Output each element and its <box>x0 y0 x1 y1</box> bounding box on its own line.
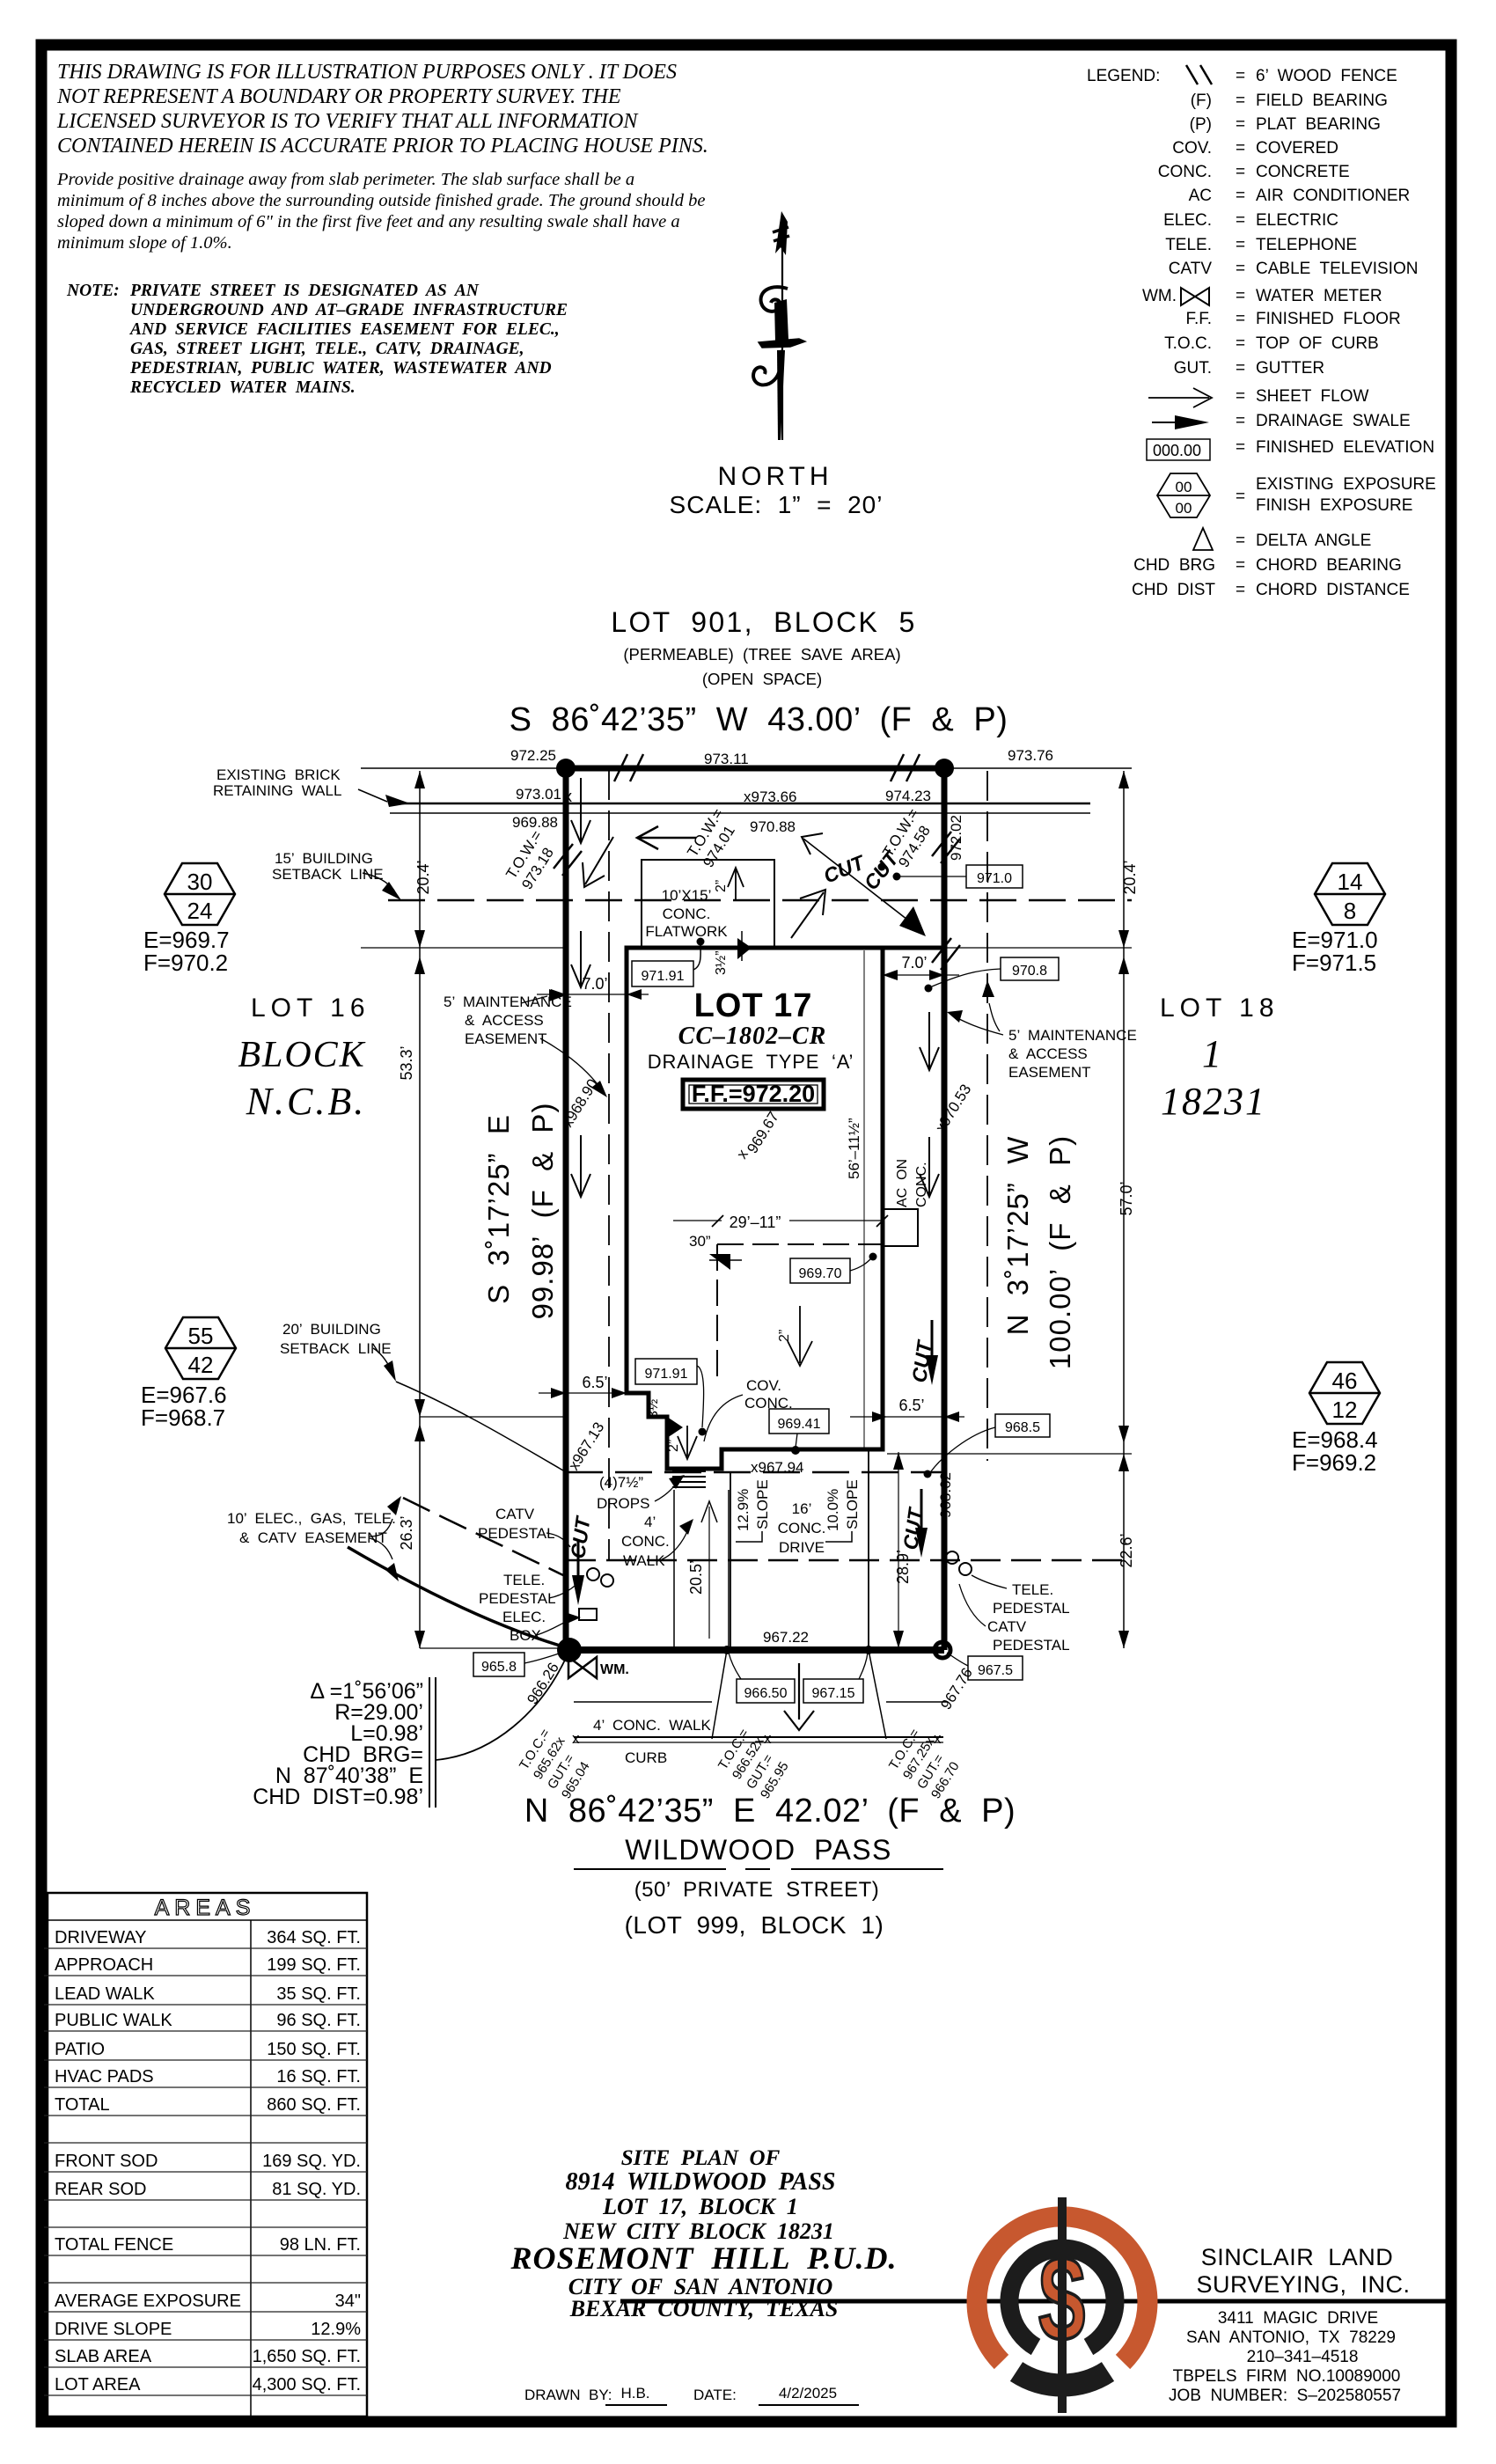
svg-text:PEDESTRIAN, PUBLIC WATER, W: PEDESTRIAN, PUBLIC WATER, WASTEWATER AND <box>129 359 552 378</box>
svg-text:WM.: WM. <box>600 1662 629 1677</box>
svg-text:HVAC PADS: HVAC PADS <box>55 2067 154 2086</box>
svg-text:4’: 4’ <box>644 1514 656 1530</box>
svg-text:ROSEMONT HILL P.U.D.: ROSEMONT HILL P.U.D. <box>510 2240 897 2276</box>
svg-text:10’X15’: 10’X15’ <box>662 887 712 904</box>
svg-text:SLOPE: SLOPE <box>844 1479 861 1529</box>
svg-text:26.3’: 26.3’ <box>398 1515 415 1550</box>
svg-text:PEDESTAL: PEDESTAL <box>479 1590 556 1607</box>
svg-text:=: = <box>1236 287 1245 305</box>
svg-text:8914 WILDWOOD PASS: 8914 WILDWOOD PASS <box>565 2168 835 2196</box>
svg-text:AREAS: AREAS <box>155 1896 256 1920</box>
svg-text:LOT 17, BLOCK 1: LOT 17, BLOCK 1 <box>602 2194 798 2219</box>
svg-text:969.41: 969.41 <box>778 1417 821 1432</box>
svg-text:LOT 18: LOT 18 <box>1160 994 1280 1023</box>
svg-text:& ACCESS: & ACCESS <box>465 1012 544 1029</box>
svg-text:=: = <box>1236 556 1245 575</box>
svg-text:COVERED: COVERED <box>1256 139 1338 158</box>
svg-text:364 SQ. FT.: 364 SQ. FT. <box>267 1928 361 1947</box>
svg-text:PATIO: PATIO <box>55 2040 105 2059</box>
svg-text:SINCLAIR LAND: SINCLAIR LAND <box>1201 2244 1394 2270</box>
svg-text:(P): (P) <box>1190 115 1212 134</box>
svg-text:971.0: 971.0 <box>977 871 1012 886</box>
svg-text:FIELD BEARING: FIELD BEARING <box>1256 92 1388 110</box>
svg-text:=: = <box>1236 412 1245 430</box>
svg-text:150 SQ. FT.: 150 SQ. FT. <box>267 2040 361 2059</box>
svg-text:(PERMEABLE) (TREE SAVE AREA: (PERMEABLE) (TREE SAVE AREA) <box>623 645 900 664</box>
svg-text:COV.: COV. <box>746 1377 781 1394</box>
svg-text:DRIVEWAY: DRIVEWAY <box>55 1928 146 1947</box>
svg-text:GUTTER: GUTTER <box>1256 359 1324 378</box>
svg-text:LOT AREA: LOT AREA <box>55 2375 141 2394</box>
svg-text:100.00’ (F & P): 100.00’ (F & P) <box>1044 1135 1076 1369</box>
svg-text:12: 12 <box>1332 1397 1358 1423</box>
svg-text:6’ WOOD FENCE: 6’ WOOD FENCE <box>1256 67 1397 85</box>
svg-text:GAS, STREET LIGHT, TELE.,: GAS, STREET LIGHT, TELE., CATV, DRAINAGE… <box>130 340 524 358</box>
svg-text:LOT 16: LOT 16 <box>251 994 370 1023</box>
svg-text:CATV: CATV <box>1169 260 1213 278</box>
svg-text:WILDWOOD PASS: WILDWOOD PASS <box>625 1834 891 1866</box>
svg-text:F=971.5: F=971.5 <box>1292 950 1376 976</box>
svg-text:967.15: 967.15 <box>812 1686 855 1701</box>
svg-text:DRAINAGE TYPE ‘A’: DRAINAGE TYPE ‘A’ <box>648 1051 854 1073</box>
svg-text:4,300 SQ. FT.: 4,300 SQ. FT. <box>253 2375 361 2394</box>
svg-text:CC–1802–CR: CC–1802–CR <box>678 1023 827 1050</box>
svg-text:FRONT SOD: FRONT SOD <box>55 2152 158 2171</box>
svg-text:AND SERVICE FACILITIES EASE: AND SERVICE FACILITIES EASEMENT FOR ELEC… <box>128 320 560 339</box>
svg-text:99.98’ (F & P): 99.98’ (F & P) <box>526 1103 559 1320</box>
svg-text:CABLE TELEVISION: CABLE TELEVISION <box>1256 260 1418 278</box>
svg-text:CHD DIST: CHD DIST <box>1132 581 1215 599</box>
svg-text:6.5’: 6.5’ <box>582 1374 607 1391</box>
svg-text:2”: 2” <box>714 880 729 892</box>
svg-text:=: = <box>1236 359 1245 378</box>
svg-text:NORTH: NORTH <box>717 462 832 491</box>
svg-text:57.0’: 57.0’ <box>1118 1181 1135 1215</box>
svg-text:=: = <box>1236 532 1245 550</box>
svg-text:REAR SOD: REAR SOD <box>55 2180 146 2199</box>
svg-text:AC: AC <box>1189 187 1212 205</box>
svg-text:968.5: 968.5 <box>1005 1420 1040 1435</box>
svg-text:14: 14 <box>1338 869 1363 895</box>
svg-text:F=969.2: F=969.2 <box>1292 1449 1376 1476</box>
svg-text:F=968.7: F=968.7 <box>141 1404 225 1431</box>
svg-text:UNDERGROUND AND AT–GRADE IN: UNDERGROUND AND AT–GRADE INFRASTRUCTURE <box>130 301 568 319</box>
svg-text:CATV: CATV <box>495 1506 535 1522</box>
svg-text:SITE PLAN OF: SITE PLAN OF <box>621 2146 781 2170</box>
svg-text:=: = <box>1236 581 1245 599</box>
svg-text:PRIVATE STREET IS DESIGNATE: PRIVATE STREET IS DESIGNATED AS AN <box>129 282 480 300</box>
svg-text:x: x <box>564 788 572 805</box>
svg-text:RETAINING WALL: RETAINING WALL <box>213 782 341 799</box>
svg-text:LOT 17: LOT 17 <box>694 987 813 1024</box>
svg-text:=: = <box>1236 438 1245 457</box>
svg-text:34": 34" <box>335 2292 361 2311</box>
svg-text:& CATV EASEMENT: & CATV EASEMENT <box>239 1529 387 1546</box>
svg-text:1: 1 <box>1202 1032 1221 1075</box>
svg-text:20.4’: 20.4’ <box>1121 860 1139 894</box>
svg-text:F.F.: F.F. <box>1185 310 1212 328</box>
svg-text:SLOPE: SLOPE <box>754 1479 771 1529</box>
svg-text:FLATWORK: FLATWORK <box>645 923 728 940</box>
svg-text:000.00: 000.00 <box>1153 442 1201 459</box>
svg-text:N 86˚42’35” E 42.02’ (F &: N 86˚42’35” E 42.02’ (F & P) <box>524 1793 1016 1830</box>
svg-text:F=970.2: F=970.2 <box>143 950 228 976</box>
svg-text:53.3’: 53.3’ <box>398 1045 415 1080</box>
svg-text:966.50: 966.50 <box>744 1686 788 1701</box>
svg-text:TOTAL FENCE: TOTAL FENCE <box>55 2235 173 2255</box>
svg-text:CHORD DISTANCE: CHORD DISTANCE <box>1256 581 1410 599</box>
svg-text:=: = <box>1236 67 1245 85</box>
svg-text:81 SQ. YD.: 81 SQ. YD. <box>272 2180 361 2199</box>
svg-text:TOTAL: TOTAL <box>55 2095 110 2115</box>
svg-text:2”: 2” <box>777 1330 792 1342</box>
svg-text:7.0’: 7.0’ <box>582 975 607 993</box>
svg-text:EXISTING BRICK: EXISTING BRICK <box>216 766 341 783</box>
svg-text:28.9’: 28.9’ <box>894 1550 912 1584</box>
svg-text:x973.66: x973.66 <box>744 788 797 805</box>
svg-text:LEAD WALK: LEAD WALK <box>55 1984 155 2004</box>
svg-text:N 3˚17’25” W: N 3˚17’25” W <box>1001 1136 1034 1336</box>
svg-text:30”: 30” <box>689 1233 711 1250</box>
svg-text:3½”: 3½” <box>646 1394 661 1419</box>
svg-text:N.C.B.: N.C.B. <box>246 1080 367 1123</box>
svg-text:JOB NUMBER: S–202580557: JOB NUMBER: S–202580557 <box>1169 2387 1401 2405</box>
svg-text:DRIVE: DRIVE <box>779 1539 825 1556</box>
svg-text:CURB: CURB <box>625 1749 667 1766</box>
svg-text:TELE.: TELE. <box>503 1572 545 1588</box>
svg-text:CONCRETE: CONCRETE <box>1256 163 1350 181</box>
svg-text:CHD BRG: CHD BRG <box>1133 556 1215 575</box>
svg-text:973.76: 973.76 <box>1008 747 1053 764</box>
svg-text:971.91: 971.91 <box>645 1367 688 1382</box>
svg-text:7.0’: 7.0’ <box>901 954 927 972</box>
svg-text:(F): (F) <box>1191 92 1212 110</box>
svg-text:GUT.: GUT. <box>1174 359 1212 378</box>
svg-text:29’–11”: 29’–11” <box>730 1214 781 1231</box>
svg-text:20.5’: 20.5’ <box>687 1560 705 1595</box>
svg-text:SCALE: 1” = 20’: SCALE: 1” = 20’ <box>670 491 884 518</box>
svg-text:=: = <box>1236 334 1245 353</box>
svg-text:=: = <box>1236 163 1245 181</box>
svg-text:APPROACH: APPROACH <box>55 1955 153 1975</box>
svg-text:DRIVE SLOPE: DRIVE SLOPE <box>55 2320 172 2339</box>
svg-text:3½”: 3½” <box>714 950 729 975</box>
svg-text:=: = <box>1236 187 1245 205</box>
svg-text:169 SQ. YD.: 169 SQ. YD. <box>262 2152 361 2171</box>
svg-text:LOT 901, BLOCK 5: LOT 901, BLOCK 5 <box>611 606 916 638</box>
svg-text:SHEET FLOW: SHEET FLOW <box>1256 387 1369 406</box>
svg-text:973.01: 973.01 <box>516 786 561 803</box>
svg-text:967.5: 967.5 <box>978 1663 1013 1678</box>
svg-text:WM.: WM. <box>1142 287 1177 305</box>
svg-text:CONC.: CONC. <box>1158 163 1212 181</box>
svg-text:3411 MAGIC DRIVE: 3411 MAGIC DRIVE <box>1218 2309 1378 2328</box>
svg-text:EASEMENT: EASEMENT <box>1008 1064 1091 1081</box>
svg-text:968.62: 968.62 <box>937 1472 954 1518</box>
svg-text:SURVEYING, INC.: SURVEYING, INC. <box>1196 2271 1410 2298</box>
svg-text:TBPELS FIRM NO.10089000: TBPELS FIRM NO.10089000 <box>1173 2367 1401 2386</box>
svg-text:AC ON: AC ON <box>895 1159 910 1207</box>
svg-text:210–341–4518: 210–341–4518 <box>1247 2348 1359 2366</box>
svg-text:22.6’: 22.6’ <box>1118 1533 1135 1567</box>
svg-text:10’ ELEC., GAS, TELE.: 10’ ELEC., GAS, TELE. <box>227 1510 396 1527</box>
svg-text:CONTAINED HEREIN IS ACCURATE P: CONTAINED HEREIN IS ACCURATE PRIOR TO PL… <box>57 135 708 158</box>
svg-text:Provide positive drainage away: Provide positive drainage away from slab… <box>56 170 634 189</box>
svg-text:969.88: 969.88 <box>512 814 558 831</box>
svg-text:RECYCLED WATER MAINS.: RECYCLED WATER MAINS. <box>129 378 356 397</box>
svg-text:974.23: 974.23 <box>885 788 931 804</box>
svg-text:12.9%: 12.9% <box>735 1489 752 1531</box>
svg-text:FINISHED ELEVATION: FINISHED ELEVATION <box>1256 438 1434 457</box>
svg-text:20’ BUILDING: 20’ BUILDING <box>282 1321 381 1338</box>
svg-text:AIR CONDITIONER: AIR CONDITIONER <box>1256 187 1410 205</box>
svg-text:WALK: WALK <box>623 1552 665 1569</box>
svg-text:24: 24 <box>187 898 213 924</box>
svg-text:COV.: COV. <box>1172 139 1212 158</box>
svg-text:PEDESTAL: PEDESTAL <box>993 1600 1070 1617</box>
svg-text:DATE:: DATE: <box>693 2387 737 2403</box>
svg-text:PEDESTAL: PEDESTAL <box>993 1637 1070 1654</box>
svg-text:973.11: 973.11 <box>704 751 749 767</box>
svg-text:35 SQ. FT.: 35 SQ. FT. <box>276 1984 361 2004</box>
svg-text:972.02: 972.02 <box>948 815 964 861</box>
svg-text:(50’ PRIVATE STREET): (50’ PRIVATE STREET) <box>634 1878 880 1902</box>
svg-text:T.O.C.: T.O.C. <box>1164 334 1212 353</box>
svg-text:sloped down a minimum of 6" in: sloped down a minimum of 6" in the first… <box>57 212 680 231</box>
svg-text:965.8: 965.8 <box>481 1660 517 1675</box>
svg-text:199 SQ. FT.: 199 SQ. FT. <box>267 1955 361 1975</box>
svg-text:98 LN. FT.: 98 LN. FT. <box>280 2235 361 2255</box>
svg-text:56’–11½”: 56’–11½” <box>846 1118 862 1179</box>
svg-text:20.4’: 20.4’ <box>414 860 432 894</box>
svg-text:971.91: 971.91 <box>642 969 685 984</box>
svg-text:6.5’: 6.5’ <box>898 1397 924 1414</box>
svg-text:DELTA ANGLE: DELTA ANGLE <box>1256 532 1371 550</box>
svg-text:SAN ANTONIO, TX 78229: SAN ANTONIO, TX 78229 <box>1186 2328 1396 2347</box>
svg-text:=: = <box>1236 236 1245 254</box>
svg-text:(LOT 999, BLOCK 1): (LOT 999, BLOCK 1) <box>625 1911 884 1939</box>
svg-text:AVERAGE EXPOSURE: AVERAGE EXPOSURE <box>55 2292 241 2311</box>
svg-text:=: = <box>1236 488 1245 506</box>
svg-text:970.88: 970.88 <box>750 818 796 835</box>
svg-text:=: = <box>1236 310 1245 328</box>
svg-text:CONC.: CONC. <box>621 1533 670 1550</box>
svg-text:x: x <box>572 1730 580 1747</box>
svg-text:=: = <box>1236 387 1245 406</box>
svg-text:(OPEN SPACE): (OPEN SPACE) <box>702 670 822 688</box>
svg-text:CONC.: CONC. <box>778 1520 826 1536</box>
svg-text:LEGEND:: LEGEND: <box>1087 67 1160 85</box>
svg-text:THIS DRAWING IS FOR ILLUSTRATI: THIS DRAWING IS FOR ILLUSTRATION PURPOSE… <box>57 61 677 84</box>
svg-text:FINISH EXPOSURE: FINISH EXPOSURE <box>1256 496 1412 515</box>
svg-text:12.9%: 12.9% <box>311 2320 361 2339</box>
svg-text:BLOCK: BLOCK <box>238 1035 365 1075</box>
svg-text:=: = <box>1236 92 1245 110</box>
svg-text:SLAB AREA: SLAB AREA <box>55 2347 152 2366</box>
svg-text:18231: 18231 <box>1161 1080 1266 1123</box>
svg-text:H.B.: H.B. <box>620 2385 649 2402</box>
svg-text:TELE.: TELE. <box>1165 236 1212 254</box>
svg-text:S 86˚42’35” W 43.00’ (F &: S 86˚42’35” W 43.00’ (F & P) <box>510 701 1008 738</box>
svg-text:2”: 2” <box>666 1440 681 1452</box>
svg-text:S 3˚17’25” E: S 3˚17’25” E <box>482 1114 515 1304</box>
svg-text:ELECTRIC: ELECTRIC <box>1256 211 1338 230</box>
svg-text:NOT REPRESENT A BOUNDARY OR PR: NOT REPRESENT A BOUNDARY OR PROPERTY SUR… <box>56 85 621 108</box>
svg-text:8: 8 <box>1344 898 1356 924</box>
svg-text:16 SQ. FT.: 16 SQ. FT. <box>276 2067 361 2086</box>
svg-text:CONC.: CONC. <box>663 906 711 922</box>
svg-text:5’ MAINTENANCE: 5’ MAINTENANCE <box>1008 1027 1137 1044</box>
svg-text:EXISTING EXPOSURE: EXISTING EXPOSURE <box>1256 475 1436 494</box>
svg-text:=: = <box>1236 115 1245 134</box>
svg-text:EASEMENT: EASEMENT <box>465 1030 547 1047</box>
svg-text:F.F.=972.20: F.F.=972.20 <box>692 1081 815 1107</box>
svg-text:967.22: 967.22 <box>763 1629 809 1646</box>
svg-text:CONC.: CONC. <box>914 1162 929 1207</box>
svg-text:WATER METER: WATER METER <box>1256 287 1382 305</box>
svg-text:55: 55 <box>188 1323 214 1349</box>
svg-text:& ACCESS: & ACCESS <box>1008 1045 1088 1062</box>
svg-text:minimum of 8 inches above the: minimum of 8 inches above the surroundin… <box>57 191 705 210</box>
svg-text:NOTE:: NOTE: <box>66 282 120 300</box>
svg-text:DRAWN BY:: DRAWN BY: <box>524 2387 612 2403</box>
svg-text:30: 30 <box>187 869 213 895</box>
svg-text:00: 00 <box>1176 500 1192 517</box>
svg-text:BOX: BOX <box>510 1627 541 1644</box>
svg-text:16’: 16’ <box>792 1500 812 1517</box>
svg-text:CHD DIST=0.98’: CHD DIST=0.98’ <box>253 1785 423 1809</box>
svg-text:LICENSED SURVEYOR IS TO VERIFY: LICENSED SURVEYOR IS TO VERIFY THAT ALL … <box>56 110 639 133</box>
svg-text:970.8: 970.8 <box>1012 964 1047 979</box>
svg-text:4’ CONC. WALK: 4’ CONC. WALK <box>593 1717 711 1734</box>
svg-text:969.70: 969.70 <box>799 1266 842 1281</box>
svg-text:46: 46 <box>1332 1368 1358 1394</box>
svg-text:10.0%: 10.0% <box>825 1489 841 1531</box>
svg-text:972.25: 972.25 <box>510 747 556 764</box>
svg-text:ELEC.: ELEC. <box>502 1609 546 1625</box>
svg-text:(4)7½”: (4)7½” <box>599 1474 643 1491</box>
svg-text:CHORD BEARING: CHORD BEARING <box>1256 556 1402 575</box>
svg-text:96 SQ. FT.: 96 SQ. FT. <box>276 2011 361 2030</box>
svg-text:15’ BUILDING: 15’ BUILDING <box>275 850 373 867</box>
svg-text:1,650 SQ. FT.: 1,650 SQ. FT. <box>253 2347 361 2366</box>
svg-text:minimum slope of 1.0%.: minimum slope of 1.0%. <box>57 233 232 253</box>
svg-text:DROPS: DROPS <box>597 1495 649 1512</box>
svg-text:=: = <box>1236 211 1245 230</box>
svg-text:TOP OF CURB: TOP OF CURB <box>1256 334 1379 353</box>
svg-text:=: = <box>1236 260 1245 278</box>
svg-text:PEDESTAL: PEDESTAL <box>478 1525 555 1542</box>
svg-text:PUBLIC WALK: PUBLIC WALK <box>55 2011 172 2030</box>
svg-text:CATV: CATV <box>987 1618 1027 1635</box>
svg-text:PLAT BEARING: PLAT BEARING <box>1256 115 1381 134</box>
svg-text:DRAINAGE SWALE: DRAINAGE SWALE <box>1256 412 1411 430</box>
svg-text:TELE.: TELE. <box>1012 1581 1053 1598</box>
svg-text:FINISHED FLOOR: FINISHED FLOOR <box>1256 310 1401 328</box>
svg-text:ELEC.: ELEC. <box>1163 211 1212 230</box>
svg-text:4/2/2025: 4/2/2025 <box>779 2385 837 2402</box>
svg-text:=: = <box>1236 139 1245 158</box>
svg-text:42: 42 <box>188 1352 214 1378</box>
svg-text:860 SQ. FT.: 860 SQ. FT. <box>267 2095 361 2115</box>
svg-text:TELEPHONE: TELEPHONE <box>1256 236 1357 254</box>
svg-text:00: 00 <box>1176 479 1192 495</box>
